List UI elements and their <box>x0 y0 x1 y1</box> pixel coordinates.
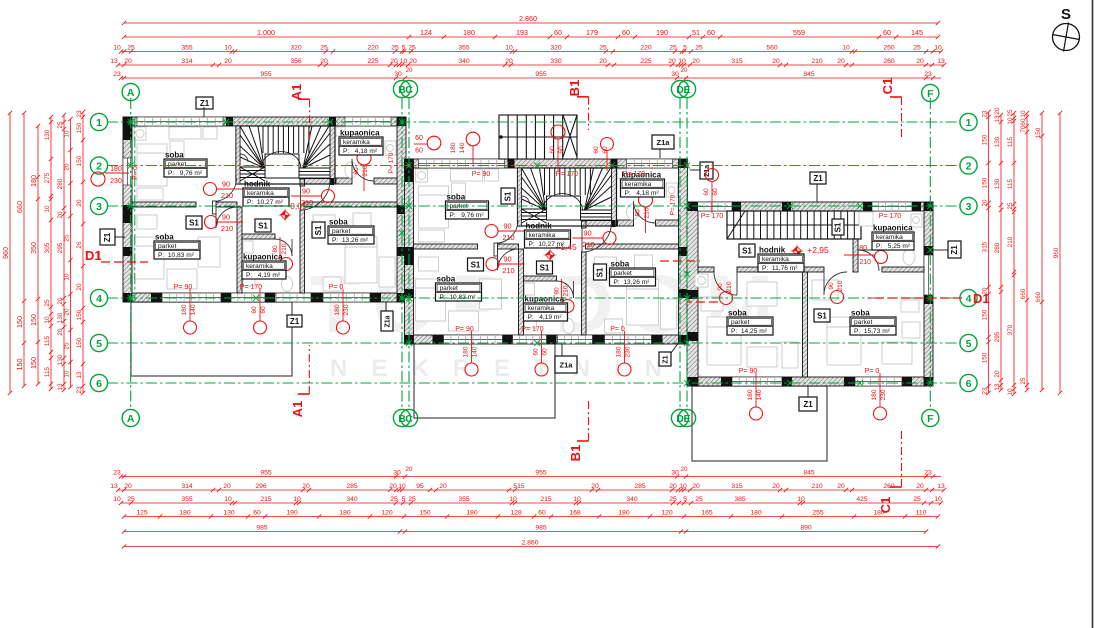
svg-text:10: 10 <box>505 45 513 52</box>
svg-text:20: 20 <box>994 370 1001 378</box>
svg-text:20: 20 <box>57 297 64 305</box>
svg-text:parket: parket <box>614 270 632 277</box>
svg-text:Z1: Z1 <box>950 245 959 255</box>
svg-text:210: 210 <box>811 483 823 490</box>
svg-text:20: 20 <box>390 58 398 65</box>
svg-text:295: 295 <box>994 331 1001 342</box>
svg-text:P= 90: P= 90 <box>472 171 491 178</box>
svg-text:23: 23 <box>113 71 121 78</box>
svg-text:210: 210 <box>221 224 233 233</box>
svg-text:5: 5 <box>402 45 406 52</box>
svg-text:25: 25 <box>695 496 703 503</box>
svg-text:23: 23 <box>982 110 989 118</box>
svg-text:C: C <box>405 413 413 425</box>
svg-text:20: 20 <box>837 483 845 490</box>
svg-text:180: 180 <box>618 510 630 517</box>
svg-text:25: 25 <box>1007 109 1014 117</box>
svg-text:285: 285 <box>634 483 646 490</box>
svg-text:S1: S1 <box>833 222 842 232</box>
svg-text:S1: S1 <box>189 218 199 227</box>
svg-text:150: 150 <box>982 177 989 188</box>
svg-text:20: 20 <box>982 199 989 207</box>
svg-text:250: 250 <box>883 45 895 52</box>
svg-text:+1,45: +1,45 <box>555 242 577 252</box>
svg-text:260: 260 <box>883 58 895 65</box>
svg-text:320: 320 <box>290 45 302 52</box>
svg-text:S1: S1 <box>595 267 604 277</box>
svg-text:20: 20 <box>772 58 780 65</box>
svg-text:20: 20 <box>692 483 700 490</box>
svg-text:hodnik: hodnik <box>244 180 271 189</box>
svg-text:955: 955 <box>260 470 272 477</box>
svg-text:25: 25 <box>669 496 677 503</box>
svg-text:230: 230 <box>625 346 632 357</box>
svg-text:179: 179 <box>586 28 598 37</box>
svg-text:10: 10 <box>293 496 301 503</box>
svg-text:120: 120 <box>381 510 393 517</box>
svg-text:890: 890 <box>800 525 812 532</box>
svg-text:60: 60 <box>558 146 565 154</box>
svg-text:3: 3 <box>966 201 972 213</box>
svg-text:60: 60 <box>542 348 549 356</box>
svg-text:110: 110 <box>916 510 927 517</box>
svg-text:P: 4,19 m²: P: 4,19 m² <box>528 314 563 321</box>
svg-text:30: 30 <box>394 71 402 78</box>
svg-text:660: 660 <box>15 201 24 213</box>
svg-text:90: 90 <box>503 222 511 231</box>
svg-text:20: 20 <box>124 483 132 490</box>
svg-text:keramika: keramika <box>247 190 274 197</box>
svg-text:Z1: Z1 <box>662 355 669 363</box>
svg-text:150: 150 <box>76 309 83 320</box>
svg-text:225: 225 <box>640 58 652 65</box>
svg-text:P: 9,76 m²: P: 9,76 m² <box>168 170 203 177</box>
svg-text:960: 960 <box>1 247 10 259</box>
svg-text:60: 60 <box>251 306 258 314</box>
svg-text:10: 10 <box>678 58 686 65</box>
svg-text:210: 210 <box>502 233 514 242</box>
svg-text:51: 51 <box>692 28 700 37</box>
svg-text:150: 150 <box>29 357 38 369</box>
svg-text:220: 220 <box>367 45 379 52</box>
svg-text:315: 315 <box>731 483 743 490</box>
svg-text:355: 355 <box>458 496 470 503</box>
svg-text:30: 30 <box>671 71 679 78</box>
svg-text:10: 10 <box>934 45 942 52</box>
svg-text:10: 10 <box>509 496 517 503</box>
svg-text:soba: soba <box>611 260 630 269</box>
svg-text:P= 170: P= 170 <box>879 213 901 220</box>
svg-text:20: 20 <box>406 466 413 473</box>
svg-text:P: 4,18 m²: P: 4,18 m² <box>625 190 660 197</box>
svg-text:F: F <box>927 413 934 425</box>
svg-text:150: 150 <box>1035 127 1042 138</box>
svg-text:P= 0: P= 0 <box>132 166 139 180</box>
svg-text:D1: D1 <box>973 291 990 306</box>
svg-text:150: 150 <box>76 122 83 133</box>
svg-text:20: 20 <box>599 58 607 65</box>
svg-text:parket: parket <box>158 243 176 250</box>
svg-text:25: 25 <box>57 121 64 129</box>
svg-text:180: 180 <box>871 389 878 400</box>
svg-text:25: 25 <box>390 496 398 503</box>
svg-text:168: 168 <box>569 510 581 517</box>
svg-text:210: 210 <box>726 281 733 292</box>
svg-text:515: 515 <box>513 483 525 490</box>
svg-text:10: 10 <box>934 496 942 503</box>
svg-text:190: 190 <box>286 510 298 517</box>
svg-text:10: 10 <box>113 45 121 52</box>
svg-text:hodnik: hodnik <box>759 246 786 255</box>
svg-text:Z1: Z1 <box>103 232 112 242</box>
svg-text:10: 10 <box>64 273 71 281</box>
svg-text:150: 150 <box>419 510 431 517</box>
svg-text:210: 210 <box>362 165 369 176</box>
svg-text:20: 20 <box>591 483 599 490</box>
svg-text:340: 340 <box>626 496 638 503</box>
svg-text:20: 20 <box>76 283 83 291</box>
svg-text:25: 25 <box>599 45 607 52</box>
svg-text:20: 20 <box>668 58 676 65</box>
svg-text:P: 10,27 m²: P: 10,27 m² <box>247 199 284 206</box>
svg-text:20: 20 <box>681 67 688 74</box>
svg-text:4: 4 <box>966 293 972 305</box>
svg-text:230: 230 <box>343 304 350 315</box>
svg-text:C1: C1 <box>878 497 893 514</box>
svg-text:275: 275 <box>44 172 51 183</box>
svg-text:314: 314 <box>181 58 193 65</box>
svg-text:150: 150 <box>76 155 83 166</box>
svg-text:210: 210 <box>644 207 651 218</box>
svg-text:kupaonica: kupaonica <box>243 253 283 262</box>
svg-text:295: 295 <box>57 242 64 253</box>
svg-text:13: 13 <box>994 383 1001 391</box>
svg-text:23: 23 <box>76 386 83 394</box>
svg-text:115: 115 <box>44 366 51 377</box>
svg-text:S1: S1 <box>471 260 481 269</box>
svg-text:210: 210 <box>859 259 871 266</box>
svg-text:P: 10,83 m²: P: 10,83 m² <box>158 252 195 259</box>
svg-text:190: 190 <box>656 28 668 37</box>
svg-text:13: 13 <box>57 383 64 391</box>
svg-text:10: 10 <box>64 130 71 138</box>
svg-text:60: 60 <box>622 28 630 37</box>
svg-text:150: 150 <box>982 309 989 320</box>
svg-text:60: 60 <box>707 28 715 37</box>
svg-text:P= 170: P= 170 <box>521 326 543 333</box>
svg-text:5: 5 <box>683 45 687 52</box>
svg-text:140: 140 <box>472 346 479 357</box>
svg-text:355: 355 <box>458 45 470 52</box>
svg-text:230: 230 <box>110 178 122 185</box>
svg-text:Z1a: Z1a <box>384 315 391 327</box>
svg-text:90: 90 <box>828 282 835 290</box>
svg-text:90: 90 <box>583 229 591 238</box>
svg-text:P: 14,25 m²: P: 14,25 m² <box>731 328 768 335</box>
svg-text:P= 170: P= 170 <box>388 152 395 173</box>
svg-text:130: 130 <box>44 129 51 140</box>
svg-text:10: 10 <box>1020 110 1027 118</box>
svg-text:80: 80 <box>635 209 642 217</box>
svg-text:60: 60 <box>712 188 719 196</box>
svg-text:130: 130 <box>994 136 1001 147</box>
svg-text:215: 215 <box>260 496 272 503</box>
svg-text:985: 985 <box>535 525 547 532</box>
svg-text:20: 20 <box>223 483 231 490</box>
svg-text:90: 90 <box>503 255 511 264</box>
svg-text:10: 10 <box>1007 388 1014 396</box>
svg-text:210: 210 <box>811 58 823 65</box>
svg-text:845: 845 <box>803 71 815 78</box>
svg-text:20: 20 <box>64 163 71 171</box>
svg-text:90: 90 <box>717 283 724 291</box>
svg-text:180: 180 <box>466 510 478 517</box>
svg-text:20: 20 <box>669 483 677 490</box>
svg-text:210: 210 <box>1007 236 1014 247</box>
svg-text:parket: parket <box>168 161 186 168</box>
svg-text:140: 140 <box>756 389 763 400</box>
svg-text:955: 955 <box>260 71 272 78</box>
svg-text:320: 320 <box>550 45 562 52</box>
svg-text:20: 20 <box>505 58 513 65</box>
svg-text:A: A <box>127 87 135 99</box>
svg-text:10: 10 <box>679 483 687 490</box>
svg-text:60: 60 <box>549 146 556 154</box>
svg-text:150: 150 <box>15 359 24 371</box>
svg-text:370: 370 <box>1007 324 1014 335</box>
svg-text:B1: B1 <box>568 445 583 462</box>
svg-text:keramika: keramika <box>528 305 555 312</box>
svg-text:P: 13,26 m²: P: 13,26 m² <box>332 237 369 244</box>
svg-text:340: 340 <box>346 496 358 503</box>
svg-text:1: 1 <box>96 117 102 129</box>
svg-text:C: C <box>405 84 413 96</box>
svg-text:soba: soba <box>447 193 466 202</box>
svg-text:25: 25 <box>127 45 135 52</box>
svg-text:115: 115 <box>44 335 51 346</box>
svg-text:S1: S1 <box>258 221 268 230</box>
svg-text:20: 20 <box>692 58 700 65</box>
svg-text:350: 350 <box>29 242 38 254</box>
svg-text:kupaonica: kupaonica <box>525 295 565 304</box>
svg-text:130: 130 <box>223 510 235 517</box>
svg-text:210: 210 <box>502 266 514 275</box>
svg-text:356: 356 <box>290 58 302 65</box>
svg-text:20: 20 <box>57 328 64 336</box>
svg-text:20: 20 <box>124 58 132 65</box>
svg-text:559: 559 <box>793 28 805 37</box>
svg-text:Z1a: Z1a <box>657 138 671 147</box>
svg-text:23: 23 <box>924 470 932 477</box>
svg-text:keramika: keramika <box>625 181 652 188</box>
svg-text:10: 10 <box>398 483 406 490</box>
svg-text:180: 180 <box>747 389 754 400</box>
svg-text:25: 25 <box>44 299 51 307</box>
svg-text:180: 180 <box>179 510 191 517</box>
svg-text:parket: parket <box>332 228 350 235</box>
svg-text:4: 4 <box>96 293 102 305</box>
svg-text:124: 124 <box>420 28 432 37</box>
svg-text:P= 170: P= 170 <box>240 284 262 291</box>
svg-text:A1: A1 <box>290 401 305 418</box>
svg-text:180: 180 <box>450 142 457 153</box>
svg-text:95: 95 <box>416 483 424 490</box>
svg-text:25: 25 <box>669 45 677 52</box>
svg-text:kupaonica: kupaonica <box>873 224 913 233</box>
svg-text:25: 25 <box>913 45 921 52</box>
svg-text:2: 2 <box>96 160 102 172</box>
svg-text:845: 845 <box>803 470 815 477</box>
svg-text:23: 23 <box>924 71 932 78</box>
svg-text:660: 660 <box>1035 291 1042 302</box>
svg-text:165: 165 <box>701 510 713 517</box>
svg-text:20: 20 <box>224 58 232 65</box>
svg-text:315: 315 <box>982 241 989 252</box>
svg-text:S1: S1 <box>314 225 323 235</box>
svg-text:parket: parket <box>450 203 468 210</box>
svg-text:150: 150 <box>982 352 989 363</box>
svg-text:60: 60 <box>602 146 609 154</box>
svg-text:280: 280 <box>994 242 1001 253</box>
svg-text:10: 10 <box>44 205 51 213</box>
svg-text:340: 340 <box>458 58 470 65</box>
svg-text:25: 25 <box>408 496 416 503</box>
svg-text:S1: S1 <box>742 246 752 255</box>
svg-text:S1: S1 <box>503 191 512 201</box>
svg-text:P= 170: P= 170 <box>556 171 578 178</box>
svg-text:25: 25 <box>64 234 71 242</box>
svg-text:E: E <box>683 413 690 425</box>
svg-text:20: 20 <box>439 483 447 490</box>
svg-text:P= 170: P= 170 <box>701 213 723 220</box>
svg-text:P: 11,76 m²: P: 11,76 m² <box>762 265 798 272</box>
svg-text:P: 9,76 m²: P: 9,76 m² <box>450 212 485 219</box>
svg-text:70: 70 <box>1020 125 1027 133</box>
svg-text:6: 6 <box>96 378 102 390</box>
svg-text:30: 30 <box>393 470 401 477</box>
svg-text:soba: soba <box>851 309 870 318</box>
svg-text:soba: soba <box>437 275 456 284</box>
svg-text:20: 20 <box>772 483 780 490</box>
svg-text:A: A <box>127 413 135 425</box>
svg-text:P= 0: P= 0 <box>610 326 625 333</box>
svg-text:80: 80 <box>353 167 360 175</box>
svg-text:10: 10 <box>573 496 581 503</box>
svg-text:330: 330 <box>550 58 562 65</box>
svg-text:Z1: Z1 <box>290 317 300 326</box>
svg-text:120: 120 <box>661 510 673 517</box>
svg-text:10: 10 <box>64 370 71 378</box>
svg-text:60: 60 <box>554 28 562 37</box>
svg-text:230: 230 <box>880 389 887 400</box>
svg-text:10: 10 <box>44 316 51 324</box>
svg-text:10: 10 <box>1007 117 1014 125</box>
svg-text:20: 20 <box>916 58 924 65</box>
svg-text:60: 60 <box>260 306 267 314</box>
svg-text:150: 150 <box>982 134 989 145</box>
svg-text:314: 314 <box>181 483 193 490</box>
svg-text:150: 150 <box>76 337 83 348</box>
svg-text:1: 1 <box>966 117 972 129</box>
svg-text:20: 20 <box>320 58 328 65</box>
svg-text:180: 180 <box>339 510 351 517</box>
svg-text:5: 5 <box>402 496 406 503</box>
svg-text:985: 985 <box>256 525 268 532</box>
svg-text:193: 193 <box>516 28 528 37</box>
svg-text:P: 5,25 m²: P: 5,25 m² <box>876 243 911 250</box>
svg-text:80: 80 <box>859 245 867 252</box>
svg-text:13: 13 <box>994 115 1001 123</box>
svg-text:13: 13 <box>110 483 118 490</box>
svg-text:90: 90 <box>222 180 230 189</box>
svg-text:20: 20 <box>389 483 397 490</box>
svg-text:S1: S1 <box>540 263 550 272</box>
svg-text:180: 180 <box>463 346 470 357</box>
svg-text:A1: A1 <box>289 84 304 101</box>
svg-text:60: 60 <box>415 148 423 155</box>
svg-text:25: 25 <box>391 45 399 52</box>
svg-text:60: 60 <box>883 28 891 37</box>
svg-text:180: 180 <box>463 28 475 37</box>
svg-text:255: 255 <box>812 510 824 517</box>
svg-text:keramika: keramika <box>529 232 556 239</box>
svg-text:285: 285 <box>346 483 358 490</box>
svg-text:960: 960 <box>1053 247 1060 258</box>
svg-text:20: 20 <box>76 199 83 207</box>
svg-text:140: 140 <box>459 142 466 153</box>
svg-text:S: S <box>1061 6 1071 23</box>
svg-text:20: 20 <box>57 211 64 219</box>
svg-text:23: 23 <box>982 387 989 395</box>
svg-text:keramika: keramika <box>762 256 789 263</box>
svg-text:10: 10 <box>400 58 408 65</box>
svg-text:130: 130 <box>57 354 64 365</box>
svg-text:5: 5 <box>683 496 687 503</box>
svg-text:soba: soba <box>728 309 747 318</box>
svg-text:210: 210 <box>582 240 594 249</box>
svg-text:130: 130 <box>994 178 1001 189</box>
svg-text:13: 13 <box>110 58 118 65</box>
svg-text:425: 425 <box>856 496 868 503</box>
svg-text:2: 2 <box>966 160 972 172</box>
svg-text:soba: soba <box>165 151 184 160</box>
svg-text:150: 150 <box>29 314 38 326</box>
svg-text:soba: soba <box>329 218 348 227</box>
svg-text:P= 170: P= 170 <box>623 171 645 178</box>
svg-text:C1: C1 <box>880 78 895 95</box>
svg-text:keramika: keramika <box>876 234 903 241</box>
svg-text:60: 60 <box>593 146 600 154</box>
svg-text:25: 25 <box>1020 377 1027 385</box>
svg-text:parket: parket <box>440 285 458 292</box>
svg-text:60: 60 <box>538 510 546 517</box>
svg-text:P: 4,18 m²: P: 4,18 m² <box>343 148 378 155</box>
svg-text:kupaonica: kupaonica <box>340 129 380 138</box>
svg-text:5: 5 <box>966 338 972 350</box>
svg-text:10: 10 <box>224 496 232 503</box>
svg-text:60: 60 <box>703 188 710 196</box>
svg-text:355: 355 <box>181 496 193 503</box>
svg-text:+2,95: +2,95 <box>807 245 829 255</box>
svg-text:2.860: 2.860 <box>521 540 538 547</box>
svg-text:3: 3 <box>96 201 102 213</box>
svg-text:60: 60 <box>533 348 540 356</box>
svg-text:60: 60 <box>253 510 261 517</box>
svg-text:S1: S1 <box>817 311 827 320</box>
svg-text:20: 20 <box>994 107 1001 115</box>
svg-text:180: 180 <box>616 346 623 357</box>
svg-text:10: 10 <box>842 45 850 52</box>
